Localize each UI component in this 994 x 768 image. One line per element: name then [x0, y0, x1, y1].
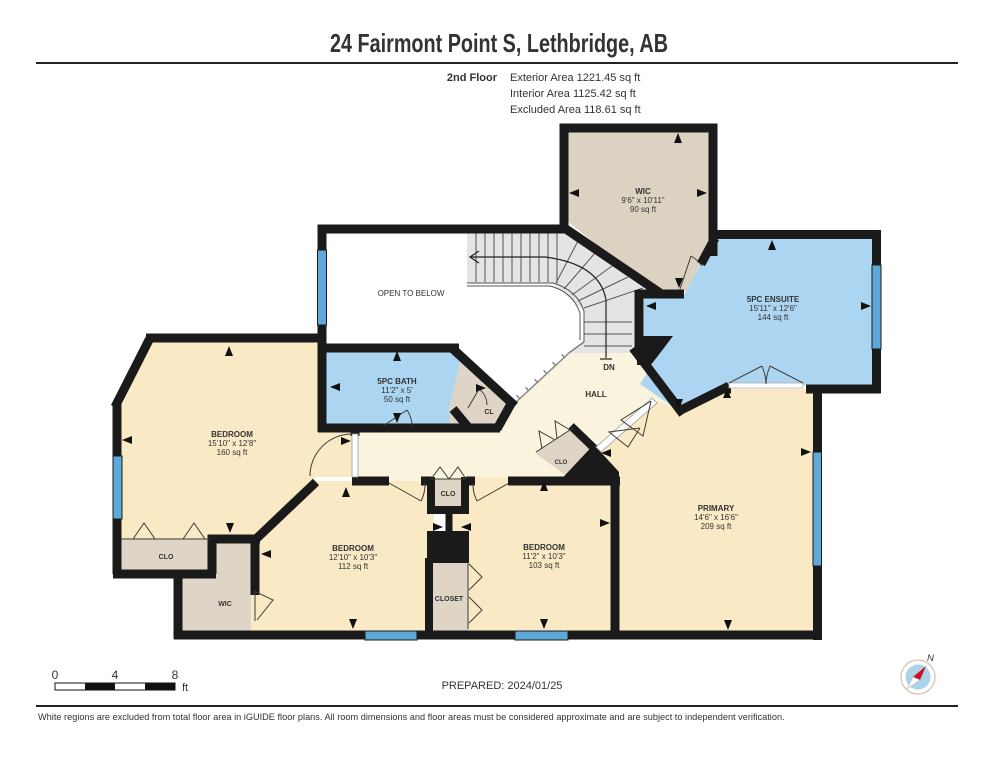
svg-text:WIC: WIC: [635, 187, 651, 196]
svg-text:2nd Floor: 2nd Floor: [447, 72, 498, 84]
svg-text:OPEN TO BELOW: OPEN TO BELOW: [378, 289, 445, 298]
svg-text:103 sq ft: 103 sq ft: [529, 561, 560, 570]
svg-text:White regions are excluded fro: White regions are excluded from total fl…: [38, 712, 785, 722]
svg-text:8: 8: [172, 668, 179, 682]
svg-text:11'2" x 5': 11'2" x 5': [381, 386, 413, 395]
svg-text:CLO: CLO: [441, 491, 456, 498]
svg-text:Exterior Area 1221.45 sq ft: Exterior Area 1221.45 sq ft: [510, 72, 640, 84]
svg-text:144 sq ft: 144 sq ft: [758, 313, 789, 322]
svg-text:BEDROOM: BEDROOM: [332, 544, 374, 553]
svg-text:24 Fairmont Point S, Lethbridg: 24 Fairmont Point S, Lethbridge, AB: [330, 28, 668, 58]
svg-text:ft: ft: [182, 682, 188, 694]
svg-text:4: 4: [112, 668, 119, 682]
svg-text:5PC BATH: 5PC BATH: [377, 377, 417, 386]
svg-text:BEDROOM: BEDROOM: [523, 543, 565, 552]
svg-text:11'2" x 10'3": 11'2" x 10'3": [522, 552, 565, 561]
svg-text:160 sq ft: 160 sq ft: [217, 448, 248, 457]
svg-text:BEDROOM: BEDROOM: [211, 430, 253, 439]
svg-text:CLO: CLO: [159, 554, 174, 561]
svg-text:WIC: WIC: [218, 601, 232, 608]
svg-text:HALL: HALL: [585, 390, 606, 399]
svg-text:209 sq ft: 209 sq ft: [701, 522, 732, 531]
svg-text:15'11" x 12'6": 15'11" x 12'6": [749, 304, 797, 313]
svg-text:CLO: CLO: [555, 460, 568, 466]
svg-text:PREPARED: 2024/01/25: PREPARED: 2024/01/25: [442, 680, 563, 692]
svg-text:Interior Area 1125.42 sq ft: Interior Area 1125.42 sq ft: [510, 88, 636, 100]
svg-text:CL: CL: [484, 409, 494, 416]
svg-text:112 sq ft: 112 sq ft: [338, 562, 369, 571]
svg-text:PRIMARY: PRIMARY: [698, 504, 735, 513]
svg-text:50 sq ft: 50 sq ft: [384, 395, 411, 404]
svg-text:Excluded Area 118.61 sq ft: Excluded Area 118.61 sq ft: [510, 104, 641, 116]
svg-text:14'6" x 16'6": 14'6" x 16'6": [694, 513, 738, 522]
svg-text:9'6" x 10'11": 9'6" x 10'11": [621, 196, 664, 205]
svg-text:0: 0: [52, 668, 59, 682]
svg-text:DN: DN: [603, 363, 615, 372]
svg-text:15'10" x 12'8": 15'10" x 12'8": [208, 439, 256, 448]
svg-text:90 sq ft: 90 sq ft: [630, 205, 657, 214]
svg-text:12'10" x 10'3": 12'10" x 10'3": [329, 553, 377, 562]
svg-text:CLOSET: CLOSET: [435, 596, 464, 603]
svg-text:5PC ENSUITE: 5PC ENSUITE: [747, 295, 800, 304]
svg-text:N: N: [927, 653, 934, 664]
